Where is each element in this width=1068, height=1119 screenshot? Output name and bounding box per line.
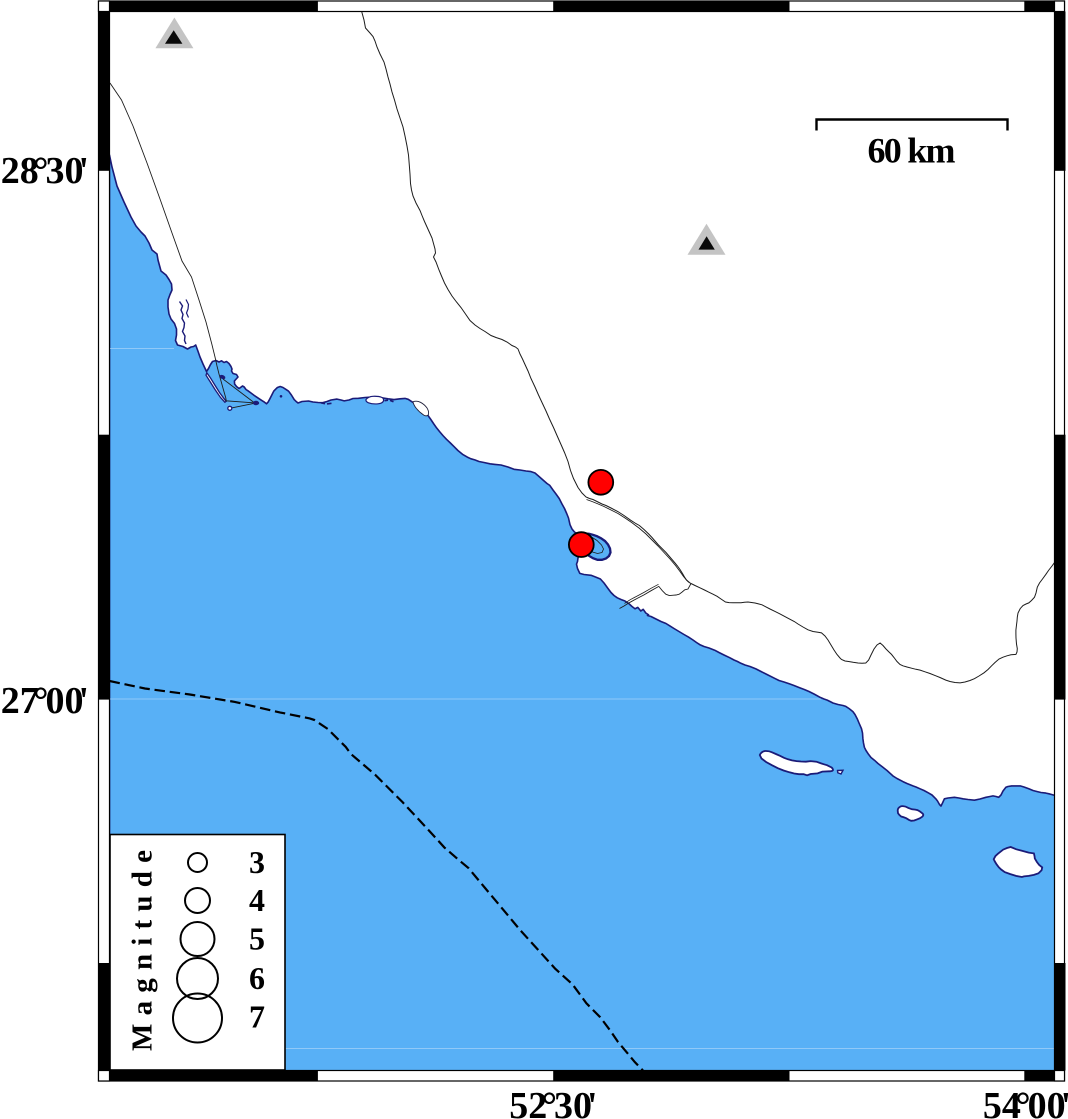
- svg-text:60 km: 60 km: [868, 131, 956, 171]
- svg-text:7: 7: [249, 999, 265, 1035]
- svg-text:28°30': 28°30': [1, 150, 89, 192]
- svg-text:6: 6: [249, 960, 265, 996]
- svg-text:27°00': 27°00': [1, 680, 89, 722]
- svg-text:Magnitude: Magnitude: [127, 842, 159, 1051]
- svg-text:54°00': 54°00': [983, 1085, 1068, 1119]
- svg-text:52°30': 52°30': [509, 1085, 597, 1119]
- svg-text:3: 3: [249, 844, 265, 880]
- svg-text:4: 4: [249, 882, 265, 918]
- svg-text:5: 5: [249, 921, 265, 957]
